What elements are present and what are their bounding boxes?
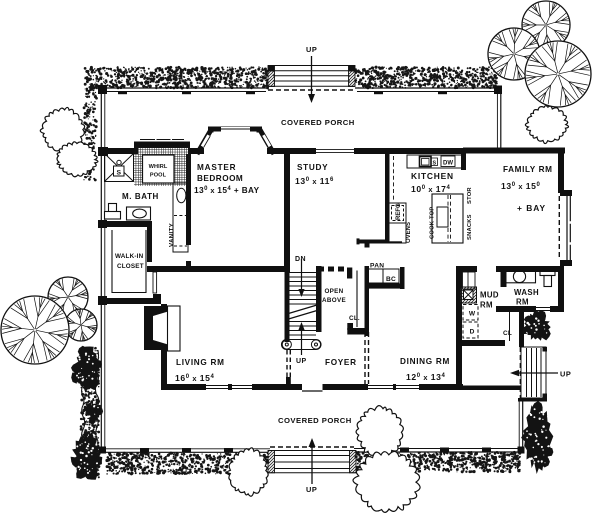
svg-text:MASTER: MASTER [197,163,236,172]
svg-text:160 x 154: 160 x 154 [175,373,215,383]
svg-text:COOK TOP: COOK TOP [430,207,436,239]
svg-text:120 x 134: 120 x 134 [406,372,446,382]
svg-text:DN: DN [295,256,306,263]
svg-text:UP: UP [560,370,571,379]
svg-text:BC: BC [386,276,396,283]
svg-text:130 x 150: 130 x 150 [501,181,541,191]
svg-text:LIVING RM: LIVING RM [176,358,225,367]
svg-text:OVENS: OVENS [406,222,412,243]
svg-text:D: D [470,329,475,336]
svg-text:UP: UP [306,45,317,54]
svg-text:REFG: REFG [396,203,402,220]
svg-text:DW: DW [443,161,453,167]
svg-text:M. BATH: M. BATH [122,192,159,201]
svg-text:BEDROOM: BEDROOM [197,174,243,183]
svg-text:KITCHEN: KITCHEN [411,171,454,181]
svg-text:100 x 174: 100 x 174 [411,184,451,194]
svg-text:130 x 116: 130 x 116 [295,176,334,186]
svg-text:OPEN: OPEN [324,288,343,295]
svg-text:130 x 154 + BAY: 130 x 154 + BAY [194,185,260,195]
svg-text:W: W [469,311,476,318]
svg-text:DINING RM: DINING RM [400,357,450,366]
svg-text:PAN: PAN [370,263,384,270]
svg-text:POOL: POOL [150,173,167,179]
svg-text:UP: UP [296,358,307,365]
svg-text:STOR: STOR [467,187,473,204]
svg-text:ABOVE: ABOVE [322,297,346,304]
svg-text:RM: RM [480,301,493,310]
svg-text:CL.: CL. [349,315,360,322]
svg-text:STUDY: STUDY [297,163,328,172]
svg-text:CLOSET: CLOSET [117,263,144,270]
svg-text:UP: UP [306,485,317,494]
svg-text:SNACKS: SNACKS [467,214,473,240]
svg-text:MUD: MUD [480,291,499,300]
svg-text:COVERED PORCH: COVERED PORCH [278,416,352,425]
svg-text:WHIRL: WHIRL [149,164,168,170]
svg-text:FOYER: FOYER [325,358,357,367]
svg-text:COVERED PORCH: COVERED PORCH [281,118,355,127]
svg-text:S: S [432,161,436,167]
svg-text:FAMILY RM: FAMILY RM [503,165,553,174]
svg-text:WASH: WASH [514,288,539,297]
svg-text:+ BAY: + BAY [517,203,546,213]
svg-text:CL: CL [503,330,512,337]
svg-text:S: S [117,170,122,177]
svg-text:WALK-IN: WALK-IN [115,253,144,260]
svg-text:VANITY: VANITY [169,222,176,247]
svg-text:RM: RM [516,298,529,307]
